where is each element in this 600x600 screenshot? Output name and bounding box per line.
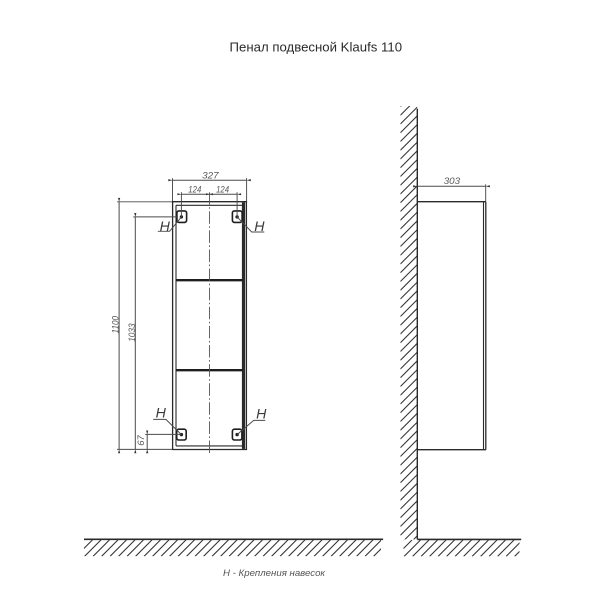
svg-text:H: H (160, 219, 171, 235)
svg-text:1100: 1100 (111, 315, 121, 333)
svg-text:327: 327 (202, 170, 219, 180)
svg-text:303: 303 (444, 176, 461, 186)
svg-text:124: 124 (216, 184, 229, 194)
svg-text:Пенал подвесной Klaufs 110: Пенал подвесной Klaufs 110 (230, 40, 403, 54)
svg-text:1033: 1033 (127, 323, 137, 342)
svg-text:124: 124 (188, 184, 201, 194)
svg-text:Н - Крепления навесок: Н - Крепления навесок (223, 568, 326, 578)
svg-text:67: 67 (136, 434, 146, 445)
